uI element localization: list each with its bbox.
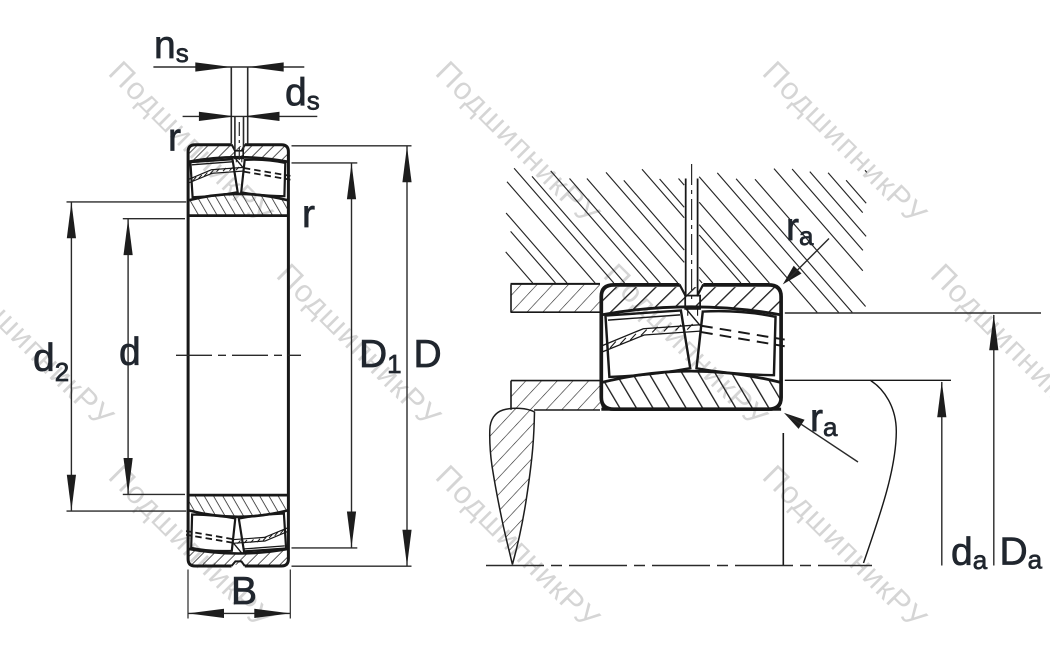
svg-text:d: d <box>119 331 141 374</box>
svg-text:r: r <box>168 117 181 160</box>
svg-text:r: r <box>302 193 315 236</box>
svg-text:D: D <box>414 333 442 376</box>
svg-text:B: B <box>231 570 257 613</box>
